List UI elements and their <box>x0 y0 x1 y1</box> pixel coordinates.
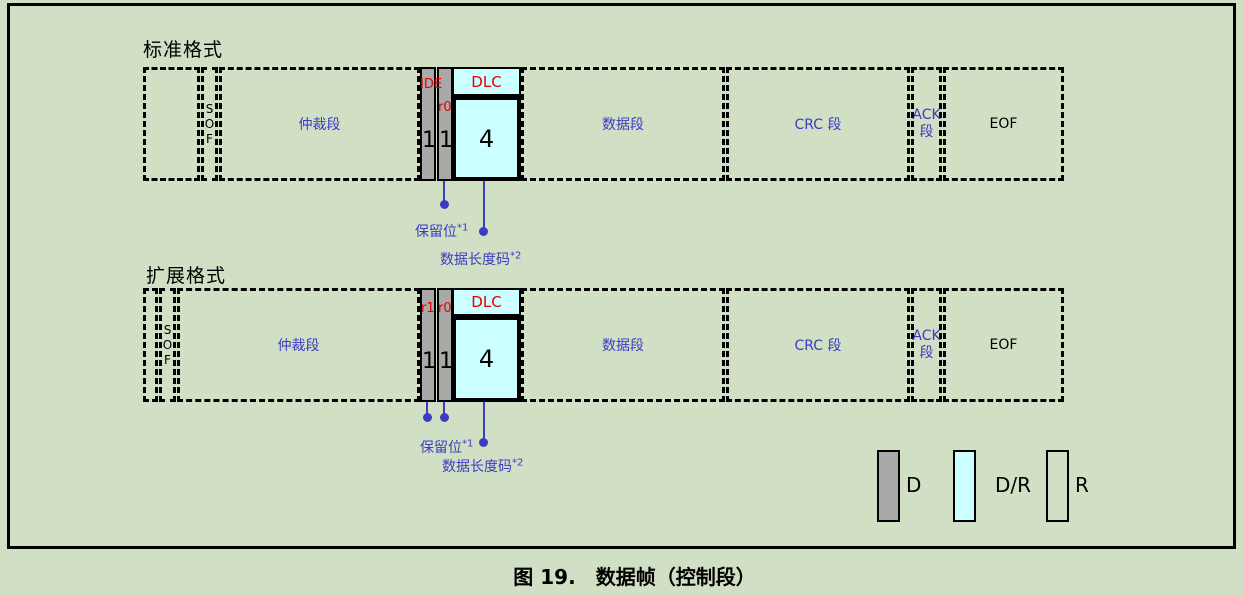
ext-ack-box: ACK 段 <box>911 288 942 402</box>
ext-r0-bit-value: 1 <box>439 350 451 374</box>
ext-dlc-box: 4 <box>452 316 521 402</box>
ext-sof-box: SOF <box>159 288 176 402</box>
ext-arbitration-label: 仲裁段 <box>278 335 320 355</box>
ext-r1-bit-label: r1 <box>421 301 435 316</box>
std-crc-box: CRC 段 <box>726 67 910 181</box>
ext-r0-bit-label: r0 <box>438 301 452 316</box>
std-data-box: 数据段 <box>521 67 725 181</box>
ext-arbitration-box: 仲裁段 <box>177 288 420 402</box>
std-dlc-code-annotation: 数据长度码*2 <box>440 249 521 269</box>
std-crc-label: CRC 段 <box>794 114 841 134</box>
std-reserved-annotation: 保留位*1 <box>415 221 468 241</box>
ext-dlc-code-annotation-sup: *2 <box>512 457 523 468</box>
ext-dlc-label: DLC <box>471 293 501 311</box>
std-ack-label-line2: 段 <box>920 124 934 141</box>
ext-dlc-code-annotation-text: 数据长度码 <box>442 459 512 475</box>
std-ide-bit-label: IDE <box>420 77 442 92</box>
std-interframe-box <box>143 67 200 181</box>
std-eof-label: EOF <box>990 116 1018 132</box>
legend-swatch-r <box>1046 450 1069 522</box>
std-r0-bit-value: 1 <box>439 129 451 153</box>
std-eof-box: EOF <box>943 67 1064 181</box>
std-dlc-header: DLC <box>452 67 521 96</box>
ext-ack-label-line2: 段 <box>920 345 934 362</box>
std-r0-bit-label: r0 <box>438 100 452 115</box>
standard-format-title: 标准格式 <box>143 35 223 62</box>
std-reserved-annotation-sup: *1 <box>457 222 468 233</box>
std-dlc-pointer-line <box>483 181 485 229</box>
ext-r0-pointer-line <box>443 402 445 415</box>
ext-reserved-annotation: 保留位*1 <box>420 437 473 457</box>
std-reserved-annotation-text: 保留位 <box>415 224 457 240</box>
ext-data-label: 数据段 <box>602 335 644 355</box>
std-dlc-value: 4 <box>479 125 494 153</box>
std-arbitration-box: 仲裁段 <box>219 67 420 181</box>
ext-reserved-annotation-text: 保留位 <box>420 440 462 456</box>
ext-sof-label: SOF <box>162 323 173 368</box>
std-ack-label-line1: ACK <box>912 107 940 124</box>
std-sof-label: SOF <box>204 102 215 147</box>
ext-r1-pointer-line <box>426 402 428 415</box>
std-arbitration-label: 仲裁段 <box>299 114 341 134</box>
ext-dlc-code-annotation: 数据长度码*2 <box>442 456 523 476</box>
ext-dlc-value: 4 <box>479 345 494 373</box>
std-dlc-label: DLC <box>471 73 501 91</box>
std-reserved-pointer-line <box>443 181 445 202</box>
figure-caption: 图 19. 数据帧（控制段） <box>0 561 1243 590</box>
ext-ack-label-line1: ACK <box>912 328 940 345</box>
legend-label-d: D <box>906 473 921 497</box>
std-data-label: 数据段 <box>602 114 644 134</box>
ext-eof-box: EOF <box>943 288 1064 402</box>
std-ack-box: ACK 段 <box>911 67 942 181</box>
ext-reserved-annotation-sup: *1 <box>462 438 473 449</box>
legend-label-r: R <box>1075 473 1089 497</box>
ext-crc-label: CRC 段 <box>794 335 841 355</box>
ext-eof-label: EOF <box>990 337 1018 353</box>
std-ide-bit-value: 1 <box>422 129 434 153</box>
ext-dlc-header: DLC <box>452 288 521 316</box>
std-dlc-code-annotation-sup: *2 <box>510 250 521 261</box>
ext-interframe-box <box>143 288 158 402</box>
figure-data-frame-control-segment: 标准格式 SOF 仲裁段 1 1 IDE r0 DLC 4 数据段 CRC 段 … <box>0 0 1243 596</box>
ext-data-box: 数据段 <box>521 288 725 402</box>
ext-crc-box: CRC 段 <box>726 288 910 402</box>
legend-swatch-d <box>877 450 900 522</box>
ext-dlc-pointer-line <box>483 402 485 441</box>
std-dlc-box: 4 <box>452 96 521 181</box>
ext-r1-bit-value: 1 <box>422 350 434 374</box>
std-sof-box: SOF <box>201 67 218 181</box>
extended-format-title: 扩展格式 <box>146 261 226 288</box>
legend-label-dr: D/R <box>995 473 1031 497</box>
std-dlc-code-annotation-text: 数据长度码 <box>440 252 510 268</box>
legend-swatch-dr <box>953 450 976 522</box>
